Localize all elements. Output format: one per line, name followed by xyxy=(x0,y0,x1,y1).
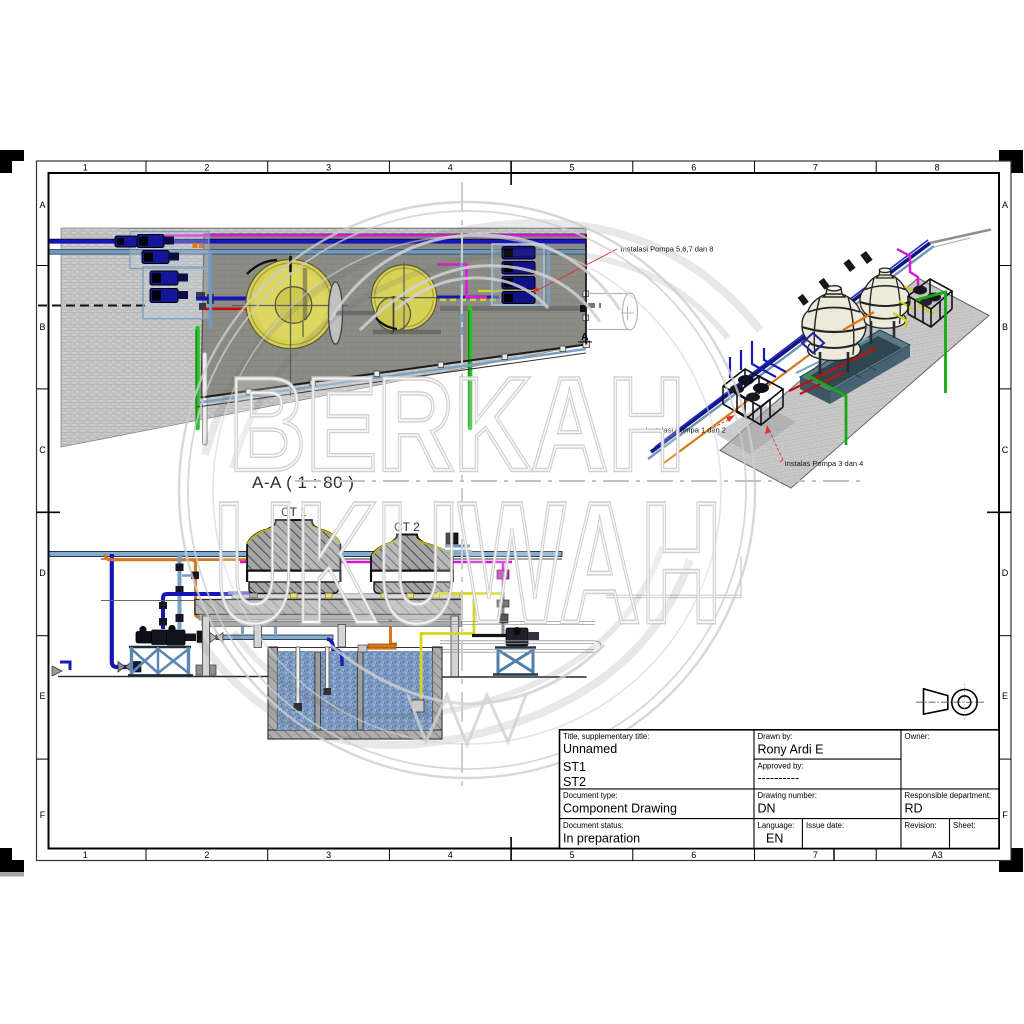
svg-text:4: 4 xyxy=(448,163,453,173)
svg-text:Unnamed: Unnamed xyxy=(563,742,617,756)
svg-text:EN: EN xyxy=(766,832,783,846)
svg-text:B: B xyxy=(1002,322,1008,332)
svg-text:Owner:: Owner: xyxy=(905,732,930,741)
svg-text:ST2: ST2 xyxy=(563,775,586,789)
svg-text:A: A xyxy=(1002,200,1008,210)
svg-text:Component Drawing: Component Drawing xyxy=(563,802,677,816)
svg-text:F: F xyxy=(40,810,46,820)
svg-text:7: 7 xyxy=(813,163,818,173)
svg-text:----------: ---------- xyxy=(758,771,800,785)
svg-text:5: 5 xyxy=(569,163,574,173)
svg-text:UKUWAH: UKUWAH xyxy=(214,467,722,659)
svg-text:Drawn by:: Drawn by: xyxy=(758,732,793,741)
svg-text:A: A xyxy=(39,200,45,210)
svg-text:A3: A3 xyxy=(932,850,943,860)
svg-text:2: 2 xyxy=(204,850,209,860)
svg-text:DN: DN xyxy=(758,802,776,816)
svg-text:Document type:: Document type: xyxy=(563,791,618,800)
svg-text:Language:: Language: xyxy=(758,821,795,830)
svg-text:D: D xyxy=(39,568,46,578)
svg-text:5: 5 xyxy=(569,850,574,860)
svg-text:1: 1 xyxy=(83,850,88,860)
svg-text:A: A xyxy=(581,331,589,343)
svg-text:Rony Ardi E: Rony Ardi E xyxy=(758,743,824,757)
svg-text:Responsible department:: Responsible department: xyxy=(905,791,992,800)
svg-text:E: E xyxy=(1002,691,1008,701)
svg-text:B: B xyxy=(39,322,45,332)
svg-text:Drawing number:: Drawing number: xyxy=(758,791,817,800)
svg-text:F: F xyxy=(1002,810,1008,820)
svg-text:Sheet:: Sheet: xyxy=(953,821,976,830)
svg-text:Revision:: Revision: xyxy=(905,821,937,830)
svg-text:4: 4 xyxy=(448,850,453,860)
svg-text:3: 3 xyxy=(326,850,331,860)
svg-text:Issue date:: Issue date: xyxy=(806,821,844,830)
svg-text:2: 2 xyxy=(204,163,209,173)
svg-text:6: 6 xyxy=(691,850,696,860)
svg-text:6: 6 xyxy=(691,163,696,173)
svg-text:Title, supplementary title:: Title, supplementary title: xyxy=(563,732,649,741)
svg-text:Approved by:: Approved by: xyxy=(758,762,804,771)
svg-text:1: 1 xyxy=(83,163,88,173)
svg-text:3: 3 xyxy=(326,163,331,173)
svg-text:In preparation: In preparation xyxy=(563,832,640,846)
svg-text:C: C xyxy=(1002,445,1009,455)
svg-text:7: 7 xyxy=(813,850,818,860)
svg-text:RD: RD xyxy=(905,802,923,816)
svg-text:8: 8 xyxy=(935,163,940,173)
svg-text:C: C xyxy=(39,445,46,455)
svg-text:Document status:: Document status: xyxy=(563,821,624,830)
svg-text:E: E xyxy=(39,691,45,701)
svg-text:ST1: ST1 xyxy=(563,760,586,774)
svg-text:Instalas Pompa 3 dan 4: Instalas Pompa 3 dan 4 xyxy=(785,459,864,468)
svg-text:D: D xyxy=(1002,568,1009,578)
